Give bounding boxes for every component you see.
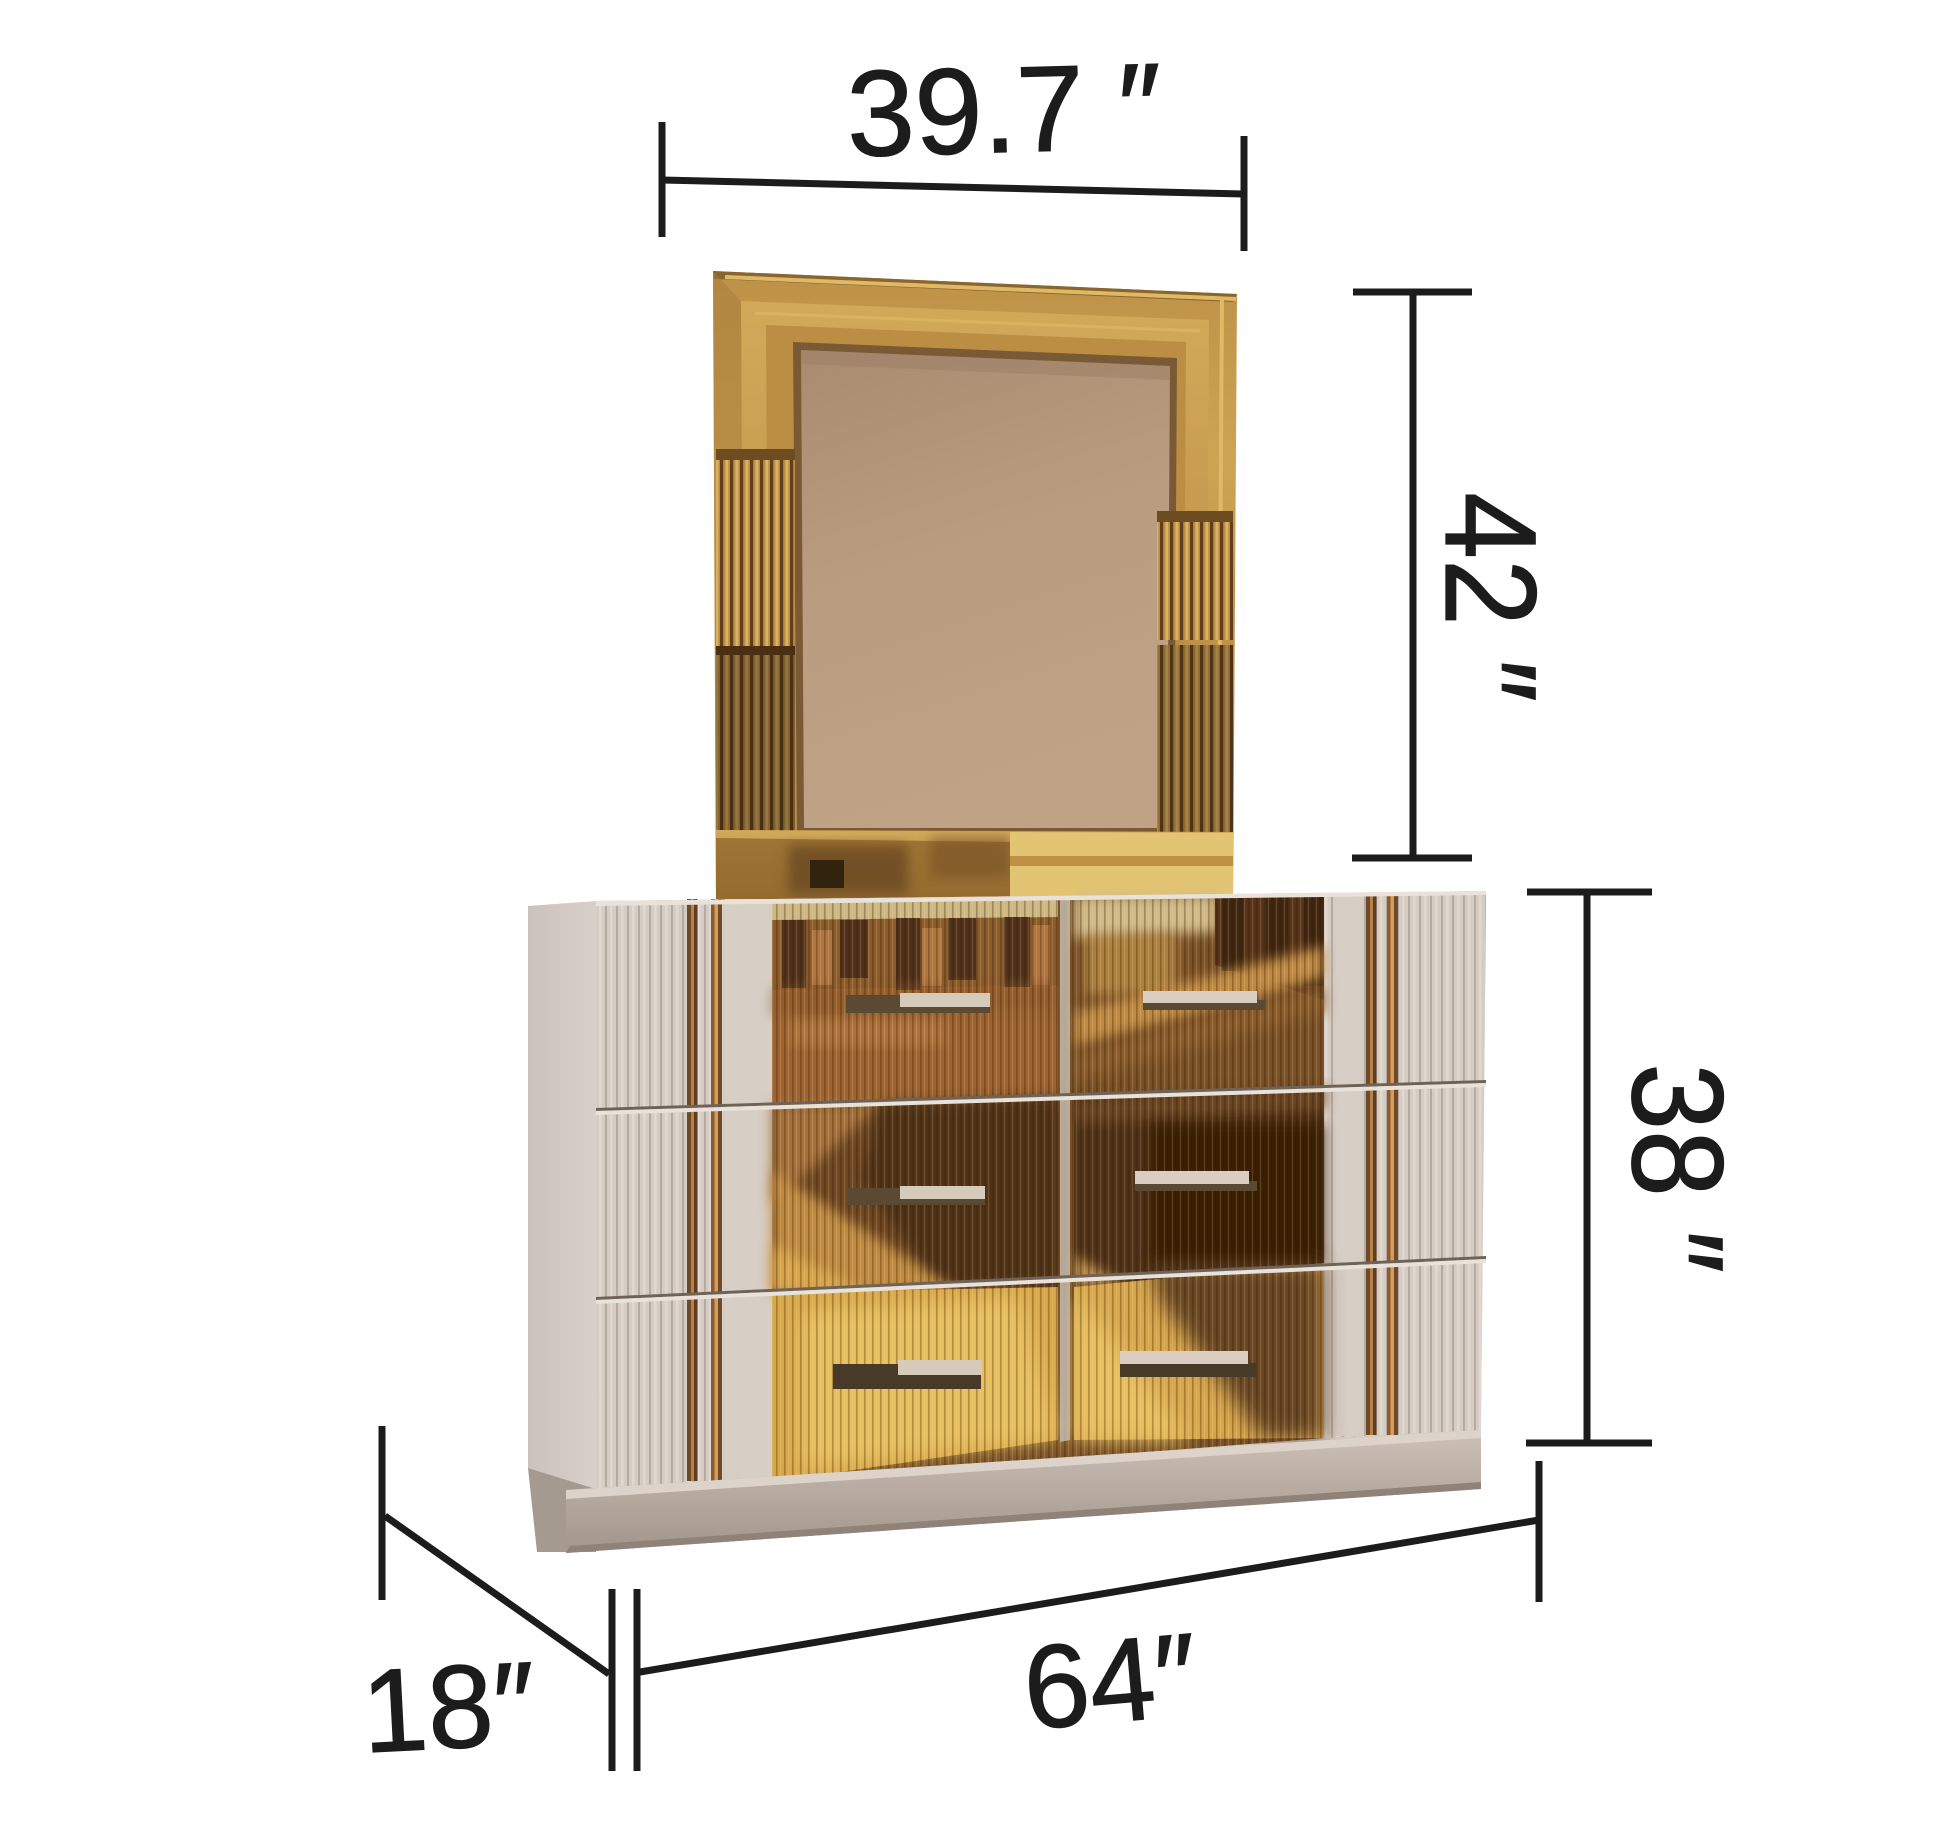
svg-text:64″: 64″ <box>1018 1609 1202 1756</box>
svg-text:18″: 18″ <box>359 1638 539 1779</box>
svg-text:38 ″: 38 ″ <box>1605 1063 1749 1272</box>
svg-text:42 ″: 42 ″ <box>1418 492 1562 701</box>
svg-text:39.7 ″: 39.7 ″ <box>845 38 1163 182</box>
